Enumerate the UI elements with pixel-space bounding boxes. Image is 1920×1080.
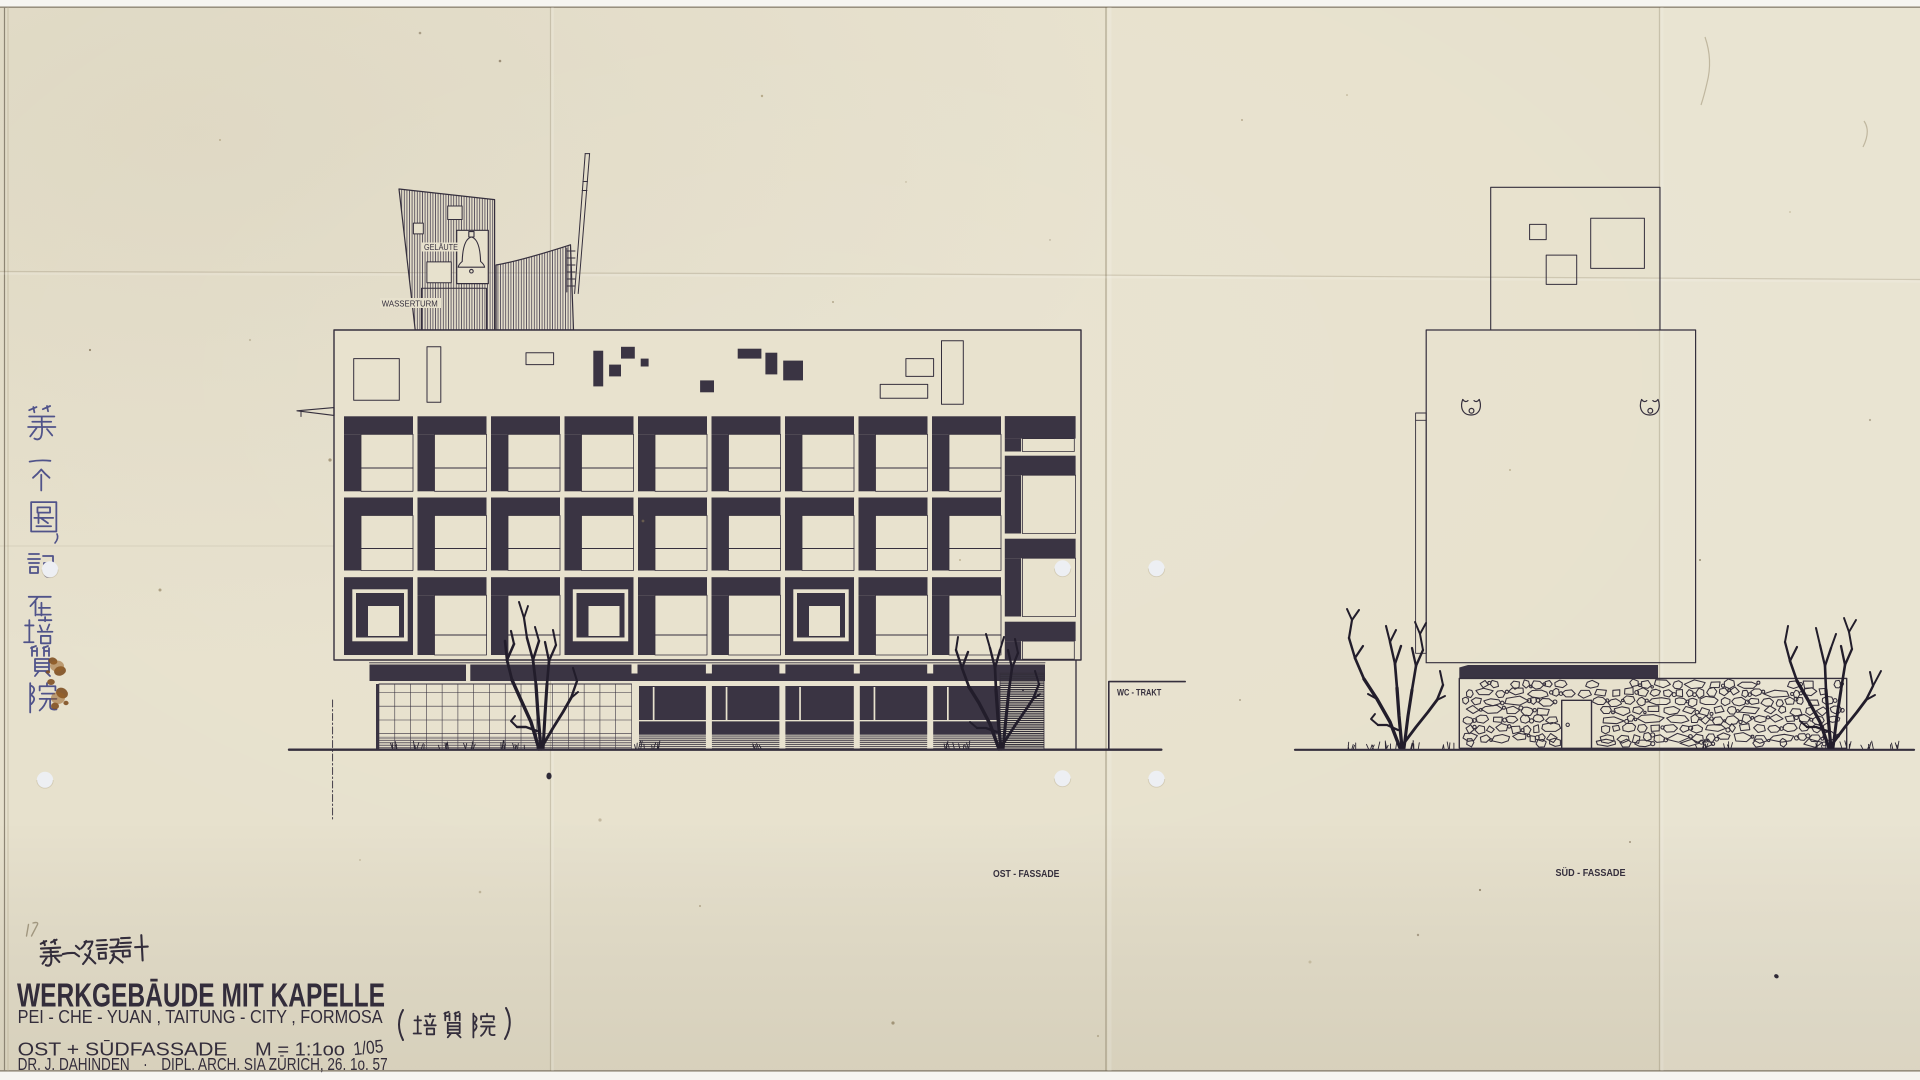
svg-text:DR. J. DAHINDEN · DIPL. ARCH.: DR. J. DAHINDEN · DIPL. ARCH. SIA ZŪRICH… bbox=[18, 1054, 388, 1074]
svg-text:WASSERTURM: WASSERTURM bbox=[382, 298, 438, 308]
svg-text:SÜD - FASSADE: SÜD - FASSADE bbox=[1556, 866, 1626, 879]
svg-text:GELÄUTE: GELÄUTE bbox=[424, 242, 458, 252]
svg-text:OST - FASSADE: OST - FASSADE bbox=[993, 869, 1059, 880]
svg-text:PEI - CHE - YUAN , TAITUNG - C: PEI - CHE - YUAN , TAITUNG - CITY , FORM… bbox=[18, 1006, 384, 1027]
svg-text:WC - TRAKT: WC - TRAKT bbox=[1117, 688, 1161, 699]
